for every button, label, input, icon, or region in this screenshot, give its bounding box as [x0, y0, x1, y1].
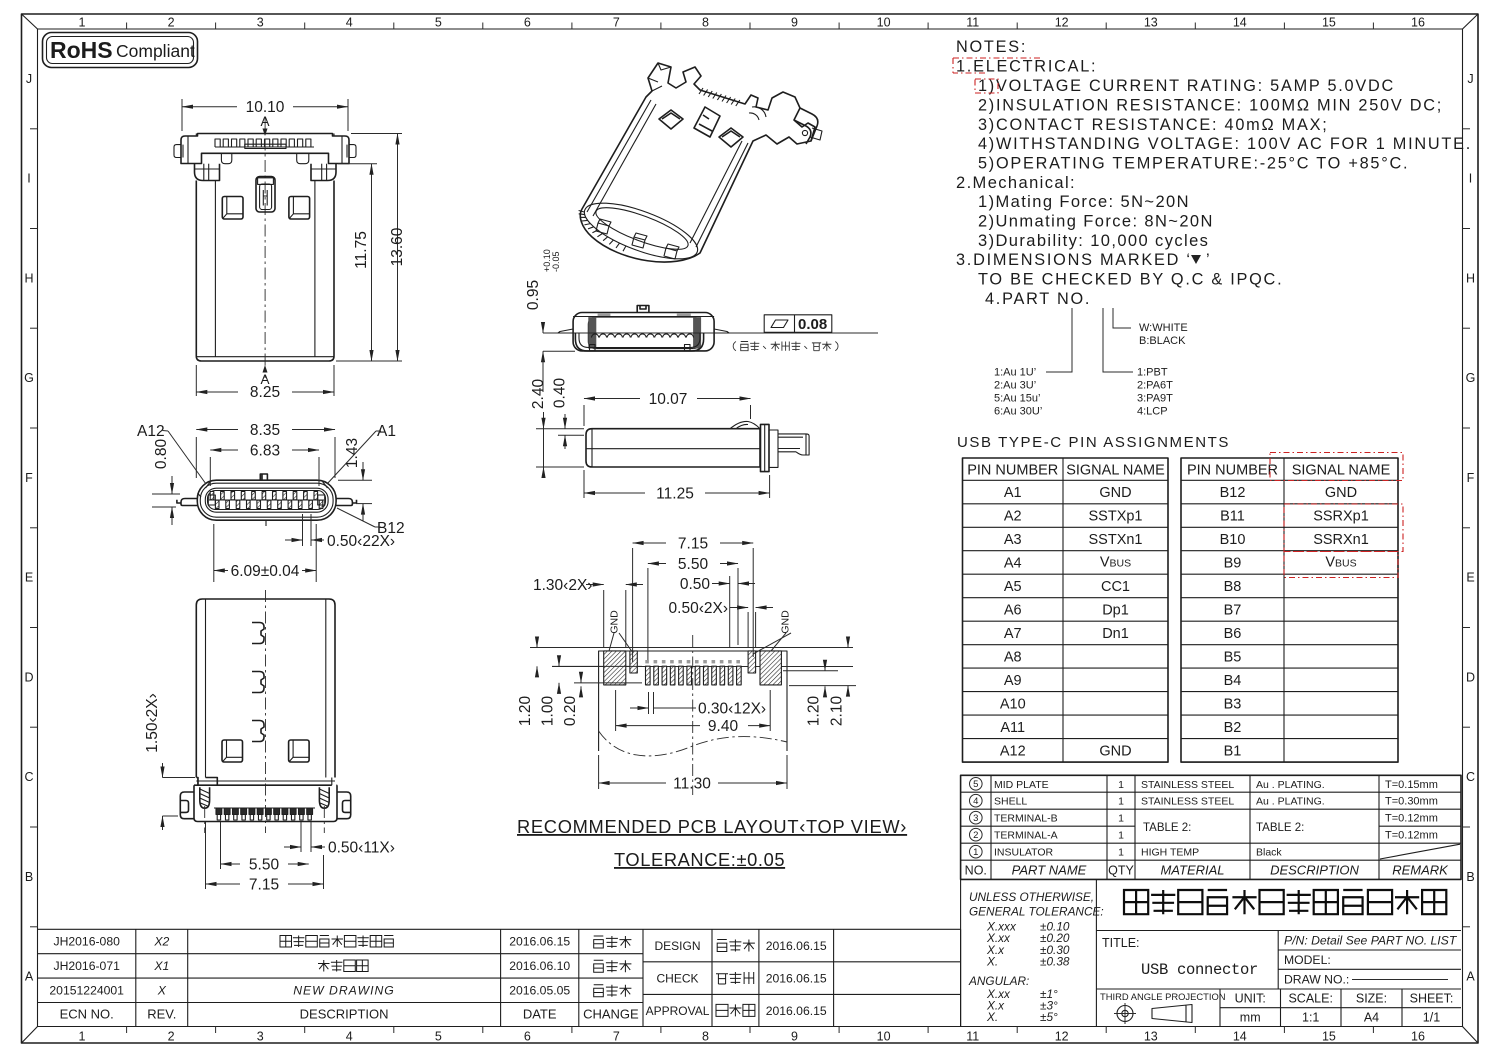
svg-text:ECN NO.: ECN NO. — [60, 1007, 114, 1022]
svg-text:HIGH TEMP: HIGH TEMP — [1141, 847, 1199, 859]
svg-text:3.DIMENSIONS MARKED ‘: 3.DIMENSIONS MARKED ‘ — [956, 251, 1192, 269]
svg-text:3:PA9T: 3:PA9T — [1137, 393, 1173, 405]
svg-text:A8: A8 — [1004, 649, 1022, 665]
svg-text:STAINLESS STEEL: STAINLESS STEEL — [1141, 796, 1234, 808]
svg-text:1: 1 — [973, 847, 978, 858]
svg-text:THIRD ANGLE PROJECTION: THIRD ANGLE PROJECTION — [1100, 991, 1226, 1002]
svg-text:SSRXn1: SSRXn1 — [1313, 532, 1369, 548]
svg-text:4)WITHSTANDING VOLTAGE: 100V A: 4)WITHSTANDING VOLTAGE: 100V AC FOR 1 MI… — [978, 135, 1472, 153]
svg-text:1/1: 1/1 — [1423, 1011, 1440, 1025]
svg-text:0.20: 0.20 — [562, 696, 579, 727]
svg-text:MATERIAL: MATERIAL — [1160, 862, 1224, 877]
svg-text:A11: A11 — [1000, 720, 1025, 736]
svg-text:0.95: 0.95 — [525, 280, 542, 310]
svg-text:7: 7 — [613, 16, 620, 30]
svg-text:GENERAL TOLERANCE:: GENERAL TOLERANCE: — [969, 905, 1104, 919]
svg-text:1.43: 1.43 — [344, 438, 361, 468]
svg-text:13: 13 — [1144, 1030, 1158, 1044]
svg-text:T=0.15mm: T=0.15mm — [1385, 779, 1438, 791]
svg-text:CC1: CC1 — [1101, 579, 1130, 595]
svg-text:GND: GND — [1325, 485, 1357, 501]
svg-text:5)OPERATING TEMPERATURE:-25°C: 5)OPERATING TEMPERATURE:-25°C TO +85°C. — [978, 155, 1409, 173]
svg-text:0.40: 0.40 — [552, 378, 569, 409]
svg-text:Black: Black — [1256, 847, 1282, 859]
svg-text:6: 6 — [524, 1030, 531, 1044]
svg-text:9: 9 — [791, 16, 798, 30]
svg-text:7.15: 7.15 — [249, 877, 279, 894]
svg-text:6.09±0.04: 6.09±0.04 — [231, 563, 300, 580]
svg-text:B2: B2 — [1224, 720, 1242, 736]
svg-text:4:LCP: 4:LCP — [1137, 406, 1168, 418]
svg-text:1: 1 — [79, 1030, 86, 1044]
svg-text:12: 12 — [1055, 16, 1069, 30]
svg-text:1:1: 1:1 — [1302, 1011, 1319, 1025]
svg-text:JH2016-071: JH2016-071 — [53, 959, 120, 973]
svg-text:SSRXp1: SSRXp1 — [1313, 509, 1369, 525]
svg-text:1:PBT: 1:PBT — [1137, 367, 1168, 379]
svg-text:A10: A10 — [1000, 696, 1026, 712]
svg-text:1.30‹2X›: 1.30‹2X› — [533, 577, 592, 594]
svg-text:2016.06.10: 2016.06.10 — [509, 959, 570, 973]
svg-text:1: 1 — [1118, 796, 1124, 808]
svg-text:8.35: 8.35 — [250, 422, 280, 439]
svg-text:2.Mechanical:: 2.Mechanical: — [956, 174, 1076, 192]
svg-text:20151224001: 20151224001 — [49, 984, 124, 998]
svg-text:B9: B9 — [1224, 556, 1242, 572]
svg-text:NOTES:: NOTES: — [956, 38, 1027, 56]
svg-text:1)VOLTAGE CURRENT RATING: 5AMP: 1)VOLTAGE CURRENT RATING: 5AMP 5.0VDC — [978, 77, 1395, 95]
svg-text:REMARK: REMARK — [1392, 862, 1449, 877]
svg-text:2: 2 — [168, 16, 175, 30]
svg-text:3: 3 — [257, 16, 264, 30]
svg-text:6.83: 6.83 — [250, 443, 280, 460]
svg-text:11: 11 — [966, 16, 979, 30]
svg-text:2016.06.15: 2016.06.15 — [509, 935, 570, 949]
svg-text:5: 5 — [973, 779, 978, 790]
svg-text:TABLE 2:: TABLE 2: — [1256, 822, 1304, 834]
svg-text:3: 3 — [973, 813, 978, 824]
svg-text:4.PART NO.: 4.PART NO. — [985, 290, 1091, 308]
svg-text:D: D — [24, 670, 33, 684]
svg-text:B6: B6 — [1224, 626, 1242, 642]
svg-text:T=0.12mm: T=0.12mm — [1385, 830, 1438, 842]
svg-text:6: 6 — [524, 16, 531, 30]
svg-text:6:Au 30U’: 6:Au 30U’ — [994, 406, 1042, 418]
svg-text:INSULATOR: INSULATOR — [994, 847, 1054, 859]
svg-text:8: 8 — [702, 1030, 709, 1044]
svg-text:10: 10 — [877, 1030, 891, 1044]
svg-text:W:WHITE: W:WHITE — [1139, 322, 1188, 334]
svg-text:JH2016-080: JH2016-080 — [53, 935, 120, 949]
svg-text:0.50‹2X›: 0.50‹2X› — [669, 600, 728, 617]
svg-text:2: 2 — [168, 1030, 175, 1044]
svg-text:TERMINAL-B: TERMINAL-B — [994, 813, 1058, 825]
svg-text:B: B — [25, 870, 33, 884]
svg-text:14: 14 — [1233, 1030, 1247, 1044]
svg-text:Compliant: Compliant — [116, 41, 195, 61]
svg-text:B11: B11 — [1220, 509, 1245, 525]
svg-text:7: 7 — [613, 1030, 620, 1044]
svg-text:1: 1 — [1118, 830, 1124, 842]
svg-text:10: 10 — [877, 16, 891, 30]
svg-text:A6: A6 — [1004, 602, 1022, 618]
svg-text:SCALE:: SCALE: — [1288, 992, 1332, 1006]
svg-text:2.40: 2.40 — [530, 379, 547, 410]
svg-text:USB connector: USB connector — [1141, 961, 1258, 979]
svg-text:E: E — [25, 571, 33, 585]
svg-text:3)Durability: 10,000 cycles: 3)Durability: 10,000 cycles — [978, 232, 1209, 250]
svg-text:’: ’ — [1206, 251, 1211, 269]
svg-text:PART NAME: PART NAME — [1012, 862, 1087, 877]
svg-text:11.75: 11.75 — [353, 231, 370, 269]
svg-text:C: C — [1466, 770, 1475, 784]
svg-text:3)CONTACT RESISTANCE: 40mΩ MAX: 3)CONTACT RESISTANCE: 40mΩ MAX; — [978, 116, 1328, 134]
svg-text:QTY: QTY — [1108, 863, 1134, 877]
svg-text:11.25: 11.25 — [656, 486, 694, 503]
svg-text:X2: X2 — [153, 935, 169, 949]
svg-text:1: 1 — [1118, 779, 1124, 791]
svg-text:14: 14 — [1233, 16, 1247, 30]
svg-text:3: 3 — [257, 1030, 264, 1044]
svg-text:2:PA6T: 2:PA6T — [1137, 380, 1173, 392]
svg-text:9.40: 9.40 — [708, 718, 739, 735]
svg-text:DESCRIPTION: DESCRIPTION — [1270, 862, 1359, 877]
svg-text:A1: A1 — [1004, 485, 1022, 501]
svg-text:GND: GND — [609, 610, 621, 634]
svg-text:DESIGN: DESIGN — [654, 939, 700, 953]
svg-text:B5: B5 — [1224, 649, 1242, 665]
svg-text:F: F — [25, 471, 33, 485]
svg-text:B3: B3 — [1224, 696, 1242, 712]
svg-text:TERMINAL-A: TERMINAL-A — [994, 830, 1058, 842]
svg-text:A: A — [260, 114, 269, 129]
svg-text:X.: X. — [986, 955, 998, 969]
svg-text:B4: B4 — [1224, 673, 1242, 689]
svg-text:DESCRIPTION: DESCRIPTION — [300, 1007, 389, 1022]
svg-text:B12: B12 — [1220, 485, 1246, 501]
svg-text:1.ELECTRICAL:: 1.ELECTRICAL: — [956, 58, 1097, 76]
svg-text:5: 5 — [435, 1030, 442, 1044]
svg-text:2)Unmating Force: 8N~20N: 2)Unmating Force: 8N~20N — [978, 213, 1214, 231]
svg-text:UNLESS OTHERWISE,: UNLESS OTHERWISE, — [969, 890, 1094, 904]
svg-text:SIGNAL NAME: SIGNAL NAME — [1066, 463, 1165, 479]
svg-text:F: F — [1467, 471, 1475, 485]
svg-text:NEW DRAWING: NEW DRAWING — [293, 984, 395, 998]
svg-text:0.50: 0.50 — [680, 576, 711, 593]
svg-text:A7: A7 — [1004, 626, 1022, 642]
svg-text:10.07: 10.07 — [649, 391, 688, 408]
svg-text:VBUS: VBUS — [1100, 555, 1131, 571]
svg-text:4: 4 — [346, 1030, 353, 1044]
svg-text:T=0.12mm: T=0.12mm — [1385, 813, 1438, 825]
svg-text:PIN NUMBER: PIN NUMBER — [967, 463, 1058, 479]
svg-text:11.30: 11.30 — [673, 776, 711, 793]
svg-text:SIGNAL NAME: SIGNAL NAME — [1292, 463, 1391, 479]
svg-text:DRAW NO.:: DRAW NO.: — [1284, 973, 1349, 987]
svg-text:A: A — [25, 970, 34, 984]
svg-text:G: G — [1466, 371, 1476, 385]
svg-text:1.00: 1.00 — [540, 696, 557, 727]
svg-text:2:Au 3U’: 2:Au 3U’ — [994, 380, 1036, 392]
svg-text:C: C — [24, 770, 33, 784]
svg-text:9: 9 — [791, 1030, 798, 1044]
svg-text:GND: GND — [1099, 743, 1131, 759]
svg-text:1.20: 1.20 — [806, 696, 823, 727]
svg-text:A3: A3 — [1004, 532, 1022, 548]
svg-text:X.: X. — [986, 1010, 998, 1024]
svg-text:8.25: 8.25 — [250, 384, 280, 401]
svg-text:Au . PLATING.: Au . PLATING. — [1256, 779, 1325, 791]
svg-text:1: 1 — [79, 16, 86, 30]
svg-text:4: 4 — [973, 796, 978, 807]
svg-text:B10: B10 — [1220, 532, 1246, 548]
svg-text:RECOMMENDED PCB LAYOUT‹TOP VIE: RECOMMENDED PCB LAYOUT‹TOP VIEW› — [517, 816, 907, 837]
svg-text:±5°: ±5° — [1040, 1010, 1058, 1024]
svg-text:SHEET:: SHEET: — [1410, 992, 1454, 1006]
svg-text:2: 2 — [973, 830, 978, 841]
svg-text:A2: A2 — [1004, 509, 1022, 525]
svg-text:2016.06.15: 2016.06.15 — [766, 972, 827, 986]
svg-text:A9: A9 — [1004, 673, 1022, 689]
svg-text:SHELL: SHELL — [994, 796, 1027, 808]
svg-text:2016.05.05: 2016.05.05 — [509, 984, 570, 998]
svg-text:I: I — [27, 172, 30, 186]
svg-text:B:BLACK: B:BLACK — [1139, 335, 1186, 347]
svg-text:-0.05: -0.05 — [551, 251, 561, 272]
svg-text:G: G — [24, 371, 34, 385]
svg-text:USB TYPE-C PIN ASSIGNMENTS: USB TYPE-C PIN ASSIGNMENTS — [957, 434, 1230, 451]
svg-text:Au . PLATING.: Au . PLATING. — [1256, 796, 1325, 808]
svg-text:PIN NUMBER: PIN NUMBER — [1187, 463, 1278, 479]
svg-text:A5: A5 — [1004, 579, 1022, 595]
svg-text:16: 16 — [1411, 16, 1425, 30]
svg-text:0.08: 0.08 — [798, 316, 827, 333]
svg-text:8: 8 — [702, 16, 709, 30]
svg-text:1.20: 1.20 — [517, 696, 534, 727]
svg-text:MID PLATE: MID PLATE — [994, 779, 1049, 791]
svg-text:GND: GND — [780, 610, 792, 634]
svg-text:E: E — [1466, 571, 1474, 585]
svg-text:A12: A12 — [1000, 743, 1026, 759]
svg-text:5:Au 15u’: 5:Au 15u’ — [994, 393, 1040, 405]
svg-text:A4: A4 — [1364, 1011, 1379, 1025]
svg-text:REV.: REV. — [147, 1007, 176, 1022]
svg-text:5.50: 5.50 — [249, 857, 280, 874]
svg-text:1: 1 — [1118, 813, 1124, 825]
svg-text:Dn1: Dn1 — [1102, 626, 1129, 642]
svg-text:2.10: 2.10 — [829, 696, 846, 727]
svg-text:2016.06.15: 2016.06.15 — [766, 939, 827, 953]
svg-text:0.80: 0.80 — [153, 439, 170, 470]
svg-text:APPROVAL: APPROVAL — [646, 1004, 710, 1018]
svg-text:13: 13 — [1144, 16, 1158, 30]
svg-text:5: 5 — [435, 16, 442, 30]
svg-text:0.50‹11X›: 0.50‹11X› — [328, 840, 395, 857]
svg-text:15: 15 — [1322, 16, 1336, 30]
svg-text:1)Mating Force: 5N~20N: 1)Mating Force: 5N~20N — [978, 193, 1190, 211]
svg-text:A12: A12 — [137, 423, 165, 440]
svg-text:5.50: 5.50 — [678, 556, 709, 573]
svg-text:B8: B8 — [1224, 579, 1242, 595]
svg-text:B: B — [1466, 870, 1474, 884]
svg-text:A: A — [1466, 970, 1475, 984]
svg-text:CHECK: CHECK — [656, 972, 698, 986]
svg-text:VBUS: VBUS — [1325, 555, 1356, 571]
svg-text:J: J — [1467, 72, 1473, 86]
svg-text:T=0.30mm: T=0.30mm — [1385, 796, 1438, 808]
svg-text:P/N: Detail See PART NO. LIST: P/N: Detail See PART NO. LIST — [1284, 934, 1458, 948]
svg-text:0.30‹12X›: 0.30‹12X› — [698, 701, 766, 718]
svg-text:11: 11 — [966, 1030, 979, 1044]
svg-text:H: H — [1466, 271, 1475, 285]
svg-text:MODEL:: MODEL: — [1284, 953, 1331, 967]
svg-text:mm: mm — [1240, 1011, 1261, 1025]
svg-text:NO.: NO. — [965, 863, 987, 877]
svg-text:D: D — [1466, 670, 1475, 684]
svg-text:SSTXp1: SSTXp1 — [1089, 509, 1143, 525]
svg-text:TITLE:: TITLE: — [1102, 936, 1140, 950]
svg-text:H: H — [24, 271, 33, 285]
svg-text:4: 4 — [346, 16, 353, 30]
svg-text:±0.38: ±0.38 — [1040, 955, 1070, 969]
svg-text:15: 15 — [1322, 1030, 1336, 1044]
svg-text:GND: GND — [1099, 485, 1131, 501]
svg-text:13.60: 13.60 — [389, 227, 406, 266]
svg-text:A4: A4 — [1004, 556, 1022, 572]
svg-text:SIZE:: SIZE: — [1356, 992, 1387, 1006]
svg-text:SSTXn1: SSTXn1 — [1089, 532, 1143, 548]
svg-text:RoHS: RoHS — [50, 37, 113, 63]
svg-text:Dp1: Dp1 — [1102, 602, 1129, 618]
svg-text:B1: B1 — [1224, 743, 1242, 759]
svg-text:TO BE CHECKED BY Q.C & IPQC.: TO BE CHECKED BY Q.C & IPQC. — [978, 271, 1283, 289]
svg-text:16: 16 — [1411, 1030, 1425, 1044]
svg-text:12: 12 — [1055, 1030, 1069, 1044]
svg-text:1.50‹2X›: 1.50‹2X› — [144, 693, 161, 752]
svg-text:ANGULAR:: ANGULAR: — [968, 974, 1029, 988]
svg-text:TABLE 2:: TABLE 2: — [1143, 822, 1191, 834]
svg-text:X: X — [157, 984, 167, 998]
svg-text:B7: B7 — [1224, 602, 1242, 618]
svg-text:2)INSULATION RESISTANCE: 100MΩ: 2)INSULATION RESISTANCE: 100MΩ MIN 250V … — [978, 97, 1443, 115]
svg-text:CHANGE: CHANGE — [583, 1007, 639, 1022]
svg-text:X1: X1 — [153, 959, 169, 973]
svg-text:0.50‹22X›: 0.50‹22X› — [327, 533, 395, 550]
svg-text:2016.06.15: 2016.06.15 — [766, 1004, 827, 1018]
svg-text:1:Au 1U’: 1:Au 1U’ — [994, 367, 1036, 379]
svg-text:UNIT:: UNIT: — [1235, 992, 1266, 1006]
svg-text:TOLERANCE:±0.05: TOLERANCE:±0.05 — [614, 849, 785, 870]
svg-text:DATE: DATE — [523, 1007, 557, 1022]
svg-text:J: J — [26, 72, 32, 86]
svg-text:I: I — [1469, 172, 1472, 186]
svg-text:1: 1 — [1118, 847, 1124, 859]
svg-text:STAINLESS STEEL: STAINLESS STEEL — [1141, 779, 1234, 791]
svg-text:7.15: 7.15 — [678, 536, 708, 553]
